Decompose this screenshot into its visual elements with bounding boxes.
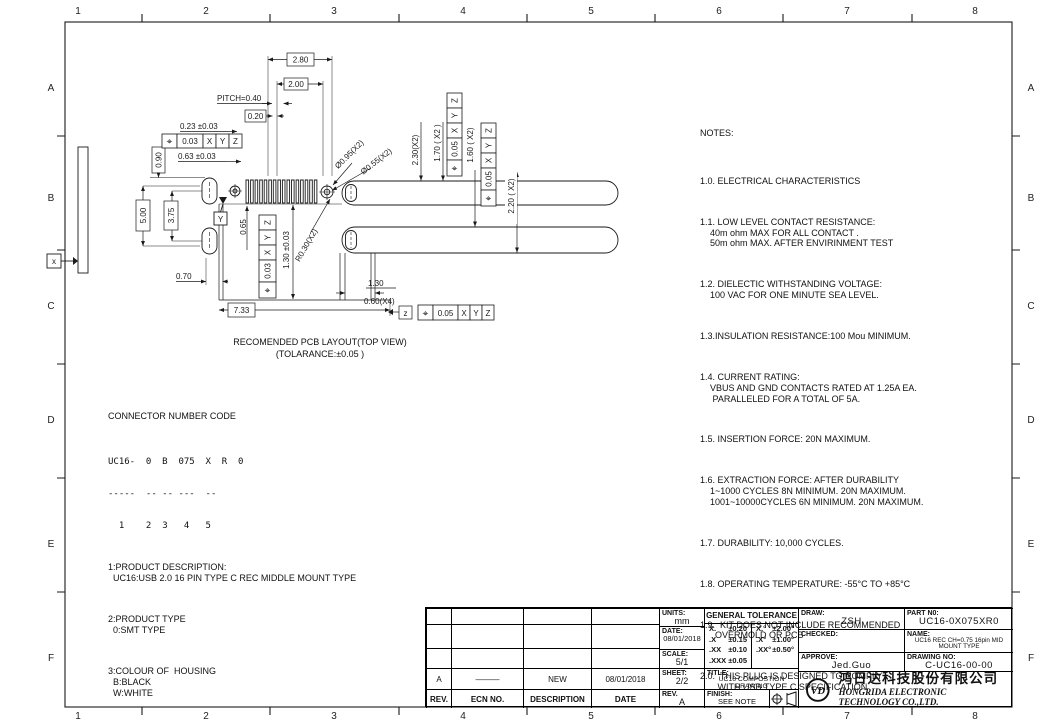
rev-cell [426,608,451,624]
row-label-left: D [44,415,58,426]
rev-a-desc: NEW [523,668,591,689]
company-name-en: HONGRIDA ELECTRONIC TECHNOLOGY CO.,LTD. [839,687,1007,708]
row-label-right: B [1024,193,1038,204]
svg-text:2.20 ( X2): 2.20 ( X2) [507,178,516,213]
svg-text:0.60(X4): 0.60(X4) [364,297,395,306]
svg-text:X: X [461,309,467,318]
row-label-left: A [44,83,58,94]
center-dimensions: 0.65 1.30 ±0.03 R0.30(X2) Ø0.95(X2) Ø0.5… [239,138,394,299]
svg-text:Z: Z [451,98,460,103]
svg-text:Y: Y [473,309,479,318]
position-symbol: ⌖ [265,286,271,297]
pcb-side-view: x [47,147,88,273]
bottom-dimensions: 7.33 1.30 0.60(X4) z [219,279,412,319]
svg-text:0.70: 0.70 [176,272,192,281]
pcb-footprint [202,178,618,300]
row-label-right: D [1024,415,1038,426]
top-dimensions: 2.80 2.00 PITCH=0.40 0.20 0.23 ±0.03 0.6… [150,53,332,178]
drawing-caption: RECOMENDED PCB LAYOUT(TOP VIEW) (TOLARAN… [205,337,435,360]
svg-text:0.05: 0.05 [438,309,454,318]
col-label-top: 8 [965,6,985,17]
rev-header-desc: DESCRIPTION [523,689,591,708]
svg-text:2.30(X2): 2.30(X2) [411,134,420,165]
datum-z-label: z [404,309,408,318]
datum-x-label: x [52,257,56,266]
svg-text:7.33: 7.33 [234,306,250,315]
svg-text:X: X [485,157,494,163]
caption-line1: RECOMENDED PCB LAYOUT(TOP VIEW) [205,337,435,349]
note-item: 1.5. INSERTION FORCE: 20N MAXIMUM. [700,434,980,445]
rev-cell [591,648,659,668]
datum-y: Y [214,197,227,225]
draw-cell: DRAW: ZSH [798,608,904,629]
svg-text:1.30: 1.30 [368,279,384,288]
note-item: 1.2. DIELECTIC WITHSTANDING VOLTAGE: 100… [700,279,980,301]
row-label-left: E [44,539,58,550]
svg-text:1.70 ( X2 ): 1.70 ( X2 ) [433,124,442,162]
rev-header-rev: REV. [426,689,451,708]
company-logo-icon: VD [805,674,831,706]
projection-symbols-icon [770,690,798,708]
checked-cell: CHECKED: [798,629,904,652]
svg-text:0.03: 0.03 [182,137,198,146]
rev-header-date: DATE [591,689,659,708]
row-label-right: C [1024,301,1038,312]
svg-text:Y: Y [485,142,494,148]
code-line: 1 2 3 4 5 [108,521,453,531]
note-item: 1.8. OPERATING TEMPERATURE: -55°C TO +85… [700,579,980,590]
note-item: 1.3.INSULATION RESISTANCE:100 Mou MINIMU… [700,331,980,342]
rev-cell [451,608,523,624]
notes-title: NOTES: [700,128,980,139]
rev-cell [523,624,591,648]
drawing-no-cell: DRAWING NO: C-UC16-00-00 [904,652,1013,671]
rev-cell [591,624,659,648]
rev-cell [523,608,591,624]
fcf-right2-005: Z Y X 0.05 ⌖ [481,123,496,206]
code-section-2: 2:PRODUCT TYPE 0:SMT TYPE [108,614,453,636]
datum-y-label: Y [218,215,224,224]
svg-text:Ø0.55(X2): Ø0.55(X2) [359,146,394,176]
svg-text:0.23 ±0.03: 0.23 ±0.03 [180,122,218,131]
col-label-top: 1 [68,6,88,17]
row-label-right: A [1024,83,1038,94]
finish-cell: FINISH: SEE NOTE [704,689,769,708]
position-symbol: ⌖ [167,137,173,148]
rev-a-ecn: ——— [451,668,523,689]
svg-text:1.60 ( X2): 1.60 ( X2) [466,127,475,162]
note-item: 1.1. LOW LEVEL CONTACT RESISTANCE: 40m o… [700,217,980,249]
col-label-top: 7 [837,6,857,17]
company-cell: VD 鸿日达科技股份有限公司 HONGRIDA ELECTRONIC TECHN… [798,671,1013,708]
svg-text:3.75: 3.75 [167,207,176,223]
svg-text:X: X [207,137,213,146]
svg-text:Y: Y [451,112,460,118]
tolerance-title: GENERAL TOLERANCE [704,608,798,623]
tolerance-angular: X.°±2.00° .X°±1.00° .XX°±0.50° [751,623,798,668]
left-dimensions: 5.00 3.75 0.70 [136,186,228,285]
rev-cell [451,648,523,668]
right-dimensions: 2.30(X2) 1.70 ( X2 ) 1.60 ( X2) 2.20 ( X… [411,122,517,253]
fcf-left-003: Z Y X 0.03 ⌖ [259,215,276,298]
connector-code-section: CONNECTOR NUMBER CODE UC16- 0 B 075 X R … [108,389,453,727]
svg-text:X: X [264,249,273,255]
svg-text:0.63 ±0.03: 0.63 ±0.03 [178,152,216,161]
svg-text:Z: Z [264,220,273,225]
svg-text:0.65: 0.65 [239,219,248,235]
rev-cell [426,648,451,668]
svg-text:1.30 ±0.03: 1.30 ±0.03 [282,231,291,269]
code-section-3: 3:COLOUR OF HOUSING B:BLACK W:WHITE [108,666,453,698]
scale-cell: SCALE:5/1 [659,649,704,668]
note-item: 1.4. CURRENT RATING: VBUS AND GND CONTAC… [700,372,980,404]
col-label-top: 2 [196,6,216,17]
col-label-top: 3 [324,6,344,17]
svg-text:X: X [451,127,460,133]
engineering-drawing-sheet: 1 2 3 4 5 6 7 8 1 2 3 4 5 6 7 8 A B C D … [0,0,1044,727]
title-block: A ——— NEW 08/01/2018 REV. ECN NO. DESCRI… [425,607,1012,707]
svg-text:0.05: 0.05 [485,171,494,187]
rev-cell [451,624,523,648]
title-cell: TITLE: UC16 COMPOSTION DRAWING [704,668,798,689]
position-symbol: ⌖ [452,164,458,175]
connector-code-heading: CONNECTOR NUMBER CODE [108,411,453,422]
date-cell: DATE:08/01/2018 [659,626,704,649]
fcf-top-003: ⌖ 0.03 X Y Z [162,134,242,148]
svg-text:5.00: 5.00 [139,207,148,223]
svg-text:0.20: 0.20 [248,112,264,121]
fcf-bottom-005: ⌖ 0.05 X Y Z [418,305,494,320]
part-no-cell: PART N0: UC16-0X075XR0 [904,608,1013,629]
svg-text:Y: Y [264,234,273,240]
caption-line2: (TOLARANCE:±0.05 ) [205,349,435,361]
col-label-bottom: 5 [581,711,601,722]
col-label-top: 6 [709,6,729,17]
note-item: 1.0. ELECTRICAL CHARACTERISTICS [700,176,980,187]
fcf-right1-005: Z Y X 0.05 ⌖ [447,93,462,176]
row-label-right: E [1024,539,1038,550]
col-label-top: 5 [581,6,601,17]
tolerance-linear: X.±0.20 .X±0.15 .XX±0.10 .XXX±0.05 [704,623,751,668]
rev-cell [426,624,451,648]
rev-cell [591,608,659,624]
approve-cell: APPROVE: Jed.Guo [798,652,904,671]
company-name-cn: 鸿日达科技股份有限公司 [839,672,1007,687]
svg-text:Y: Y [220,137,226,146]
code-line: ----- -- -- --- -- [108,489,453,499]
rev-header-ecn: ECN NO. [451,689,523,708]
svg-text:0.90: 0.90 [155,152,164,168]
svg-text:Z: Z [485,128,494,133]
rev-a-rev: A [426,668,451,689]
svg-text:Ø0.95(X2): Ø0.95(X2) [333,138,366,171]
row-label-left: B [44,193,58,204]
svg-text:0.03: 0.03 [264,263,273,279]
units-cell: UNITS:mm [659,608,704,626]
position-symbol: ⌖ [423,309,429,320]
svg-text:VD: VD [811,686,826,697]
svg-text:0.05: 0.05 [451,141,460,157]
rev-cell-info: REV.A [659,689,704,708]
svg-text:Z: Z [486,309,491,318]
row-label-left: F [44,653,58,664]
col-label-bottom: 1 [68,711,88,722]
name-cell: NAME: UC16 REC CH=0.75 16pin MID MOUNT T… [904,629,1013,652]
note-item: 1.6. EXTRACTION FORCE: AFTER DURABILITY … [700,475,980,507]
row-label-right: F [1024,653,1038,664]
rev-a-date: 08/01/2018 [591,668,659,689]
position-symbol: ⌖ [486,194,492,205]
row-label-left: C [44,301,58,312]
col-label-bottom: 4 [453,711,473,722]
svg-text:R0.30(X2): R0.30(X2) [293,227,319,263]
rev-cell [523,648,591,668]
code-section-1: 1:PRODUCT DESCRIPTION: UC16:USB 2.0 16 P… [108,562,453,584]
svg-text:PITCH=0.40: PITCH=0.40 [217,94,262,103]
svg-text:2.00: 2.00 [288,80,304,89]
note-item: 1.7. DURABILITY: 10,000 CYCLES. [700,538,980,549]
svg-text:2.80: 2.80 [293,56,309,65]
svg-text:Z: Z [233,137,238,146]
sheet-cell: SHEET:2/2 [659,668,704,689]
projection-symbol-cell [769,689,798,708]
code-line: UC16- 0 B 075 X R 0 [108,457,453,467]
col-label-top: 4 [453,6,473,17]
